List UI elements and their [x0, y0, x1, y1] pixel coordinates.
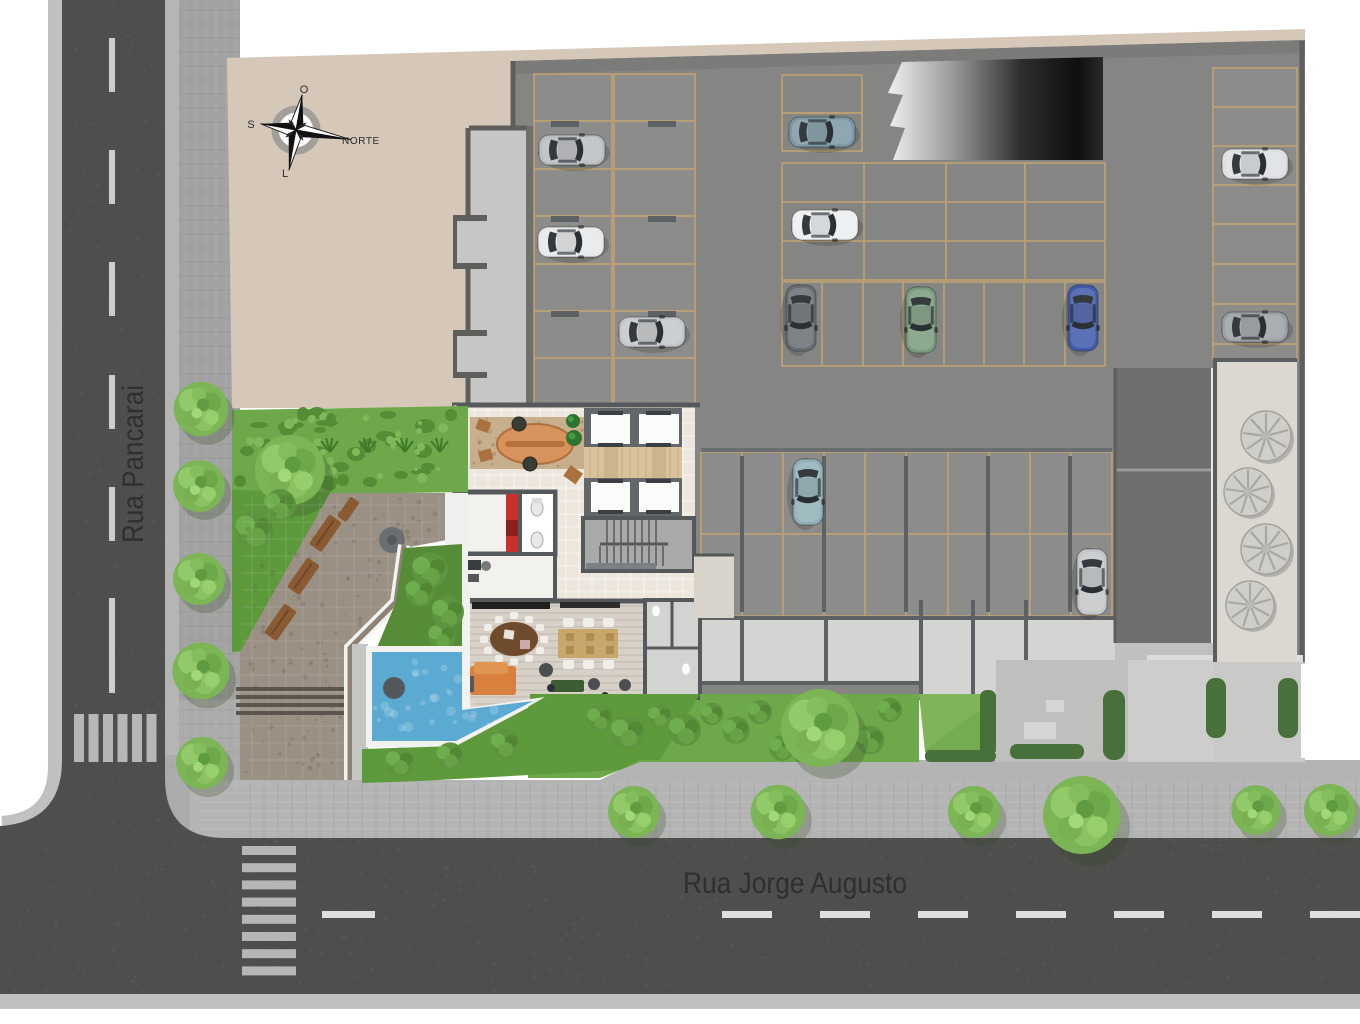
svg-text:Rua Jorge Augusto: Rua Jorge Augusto — [683, 867, 907, 900]
svg-text:Rua Pancarai: Rua Pancarai — [117, 385, 150, 543]
svg-text:L: L — [282, 168, 288, 180]
svg-text:NORTE: NORTE — [342, 136, 380, 147]
svg-text:S: S — [247, 119, 254, 131]
svg-text:O: O — [300, 84, 309, 96]
